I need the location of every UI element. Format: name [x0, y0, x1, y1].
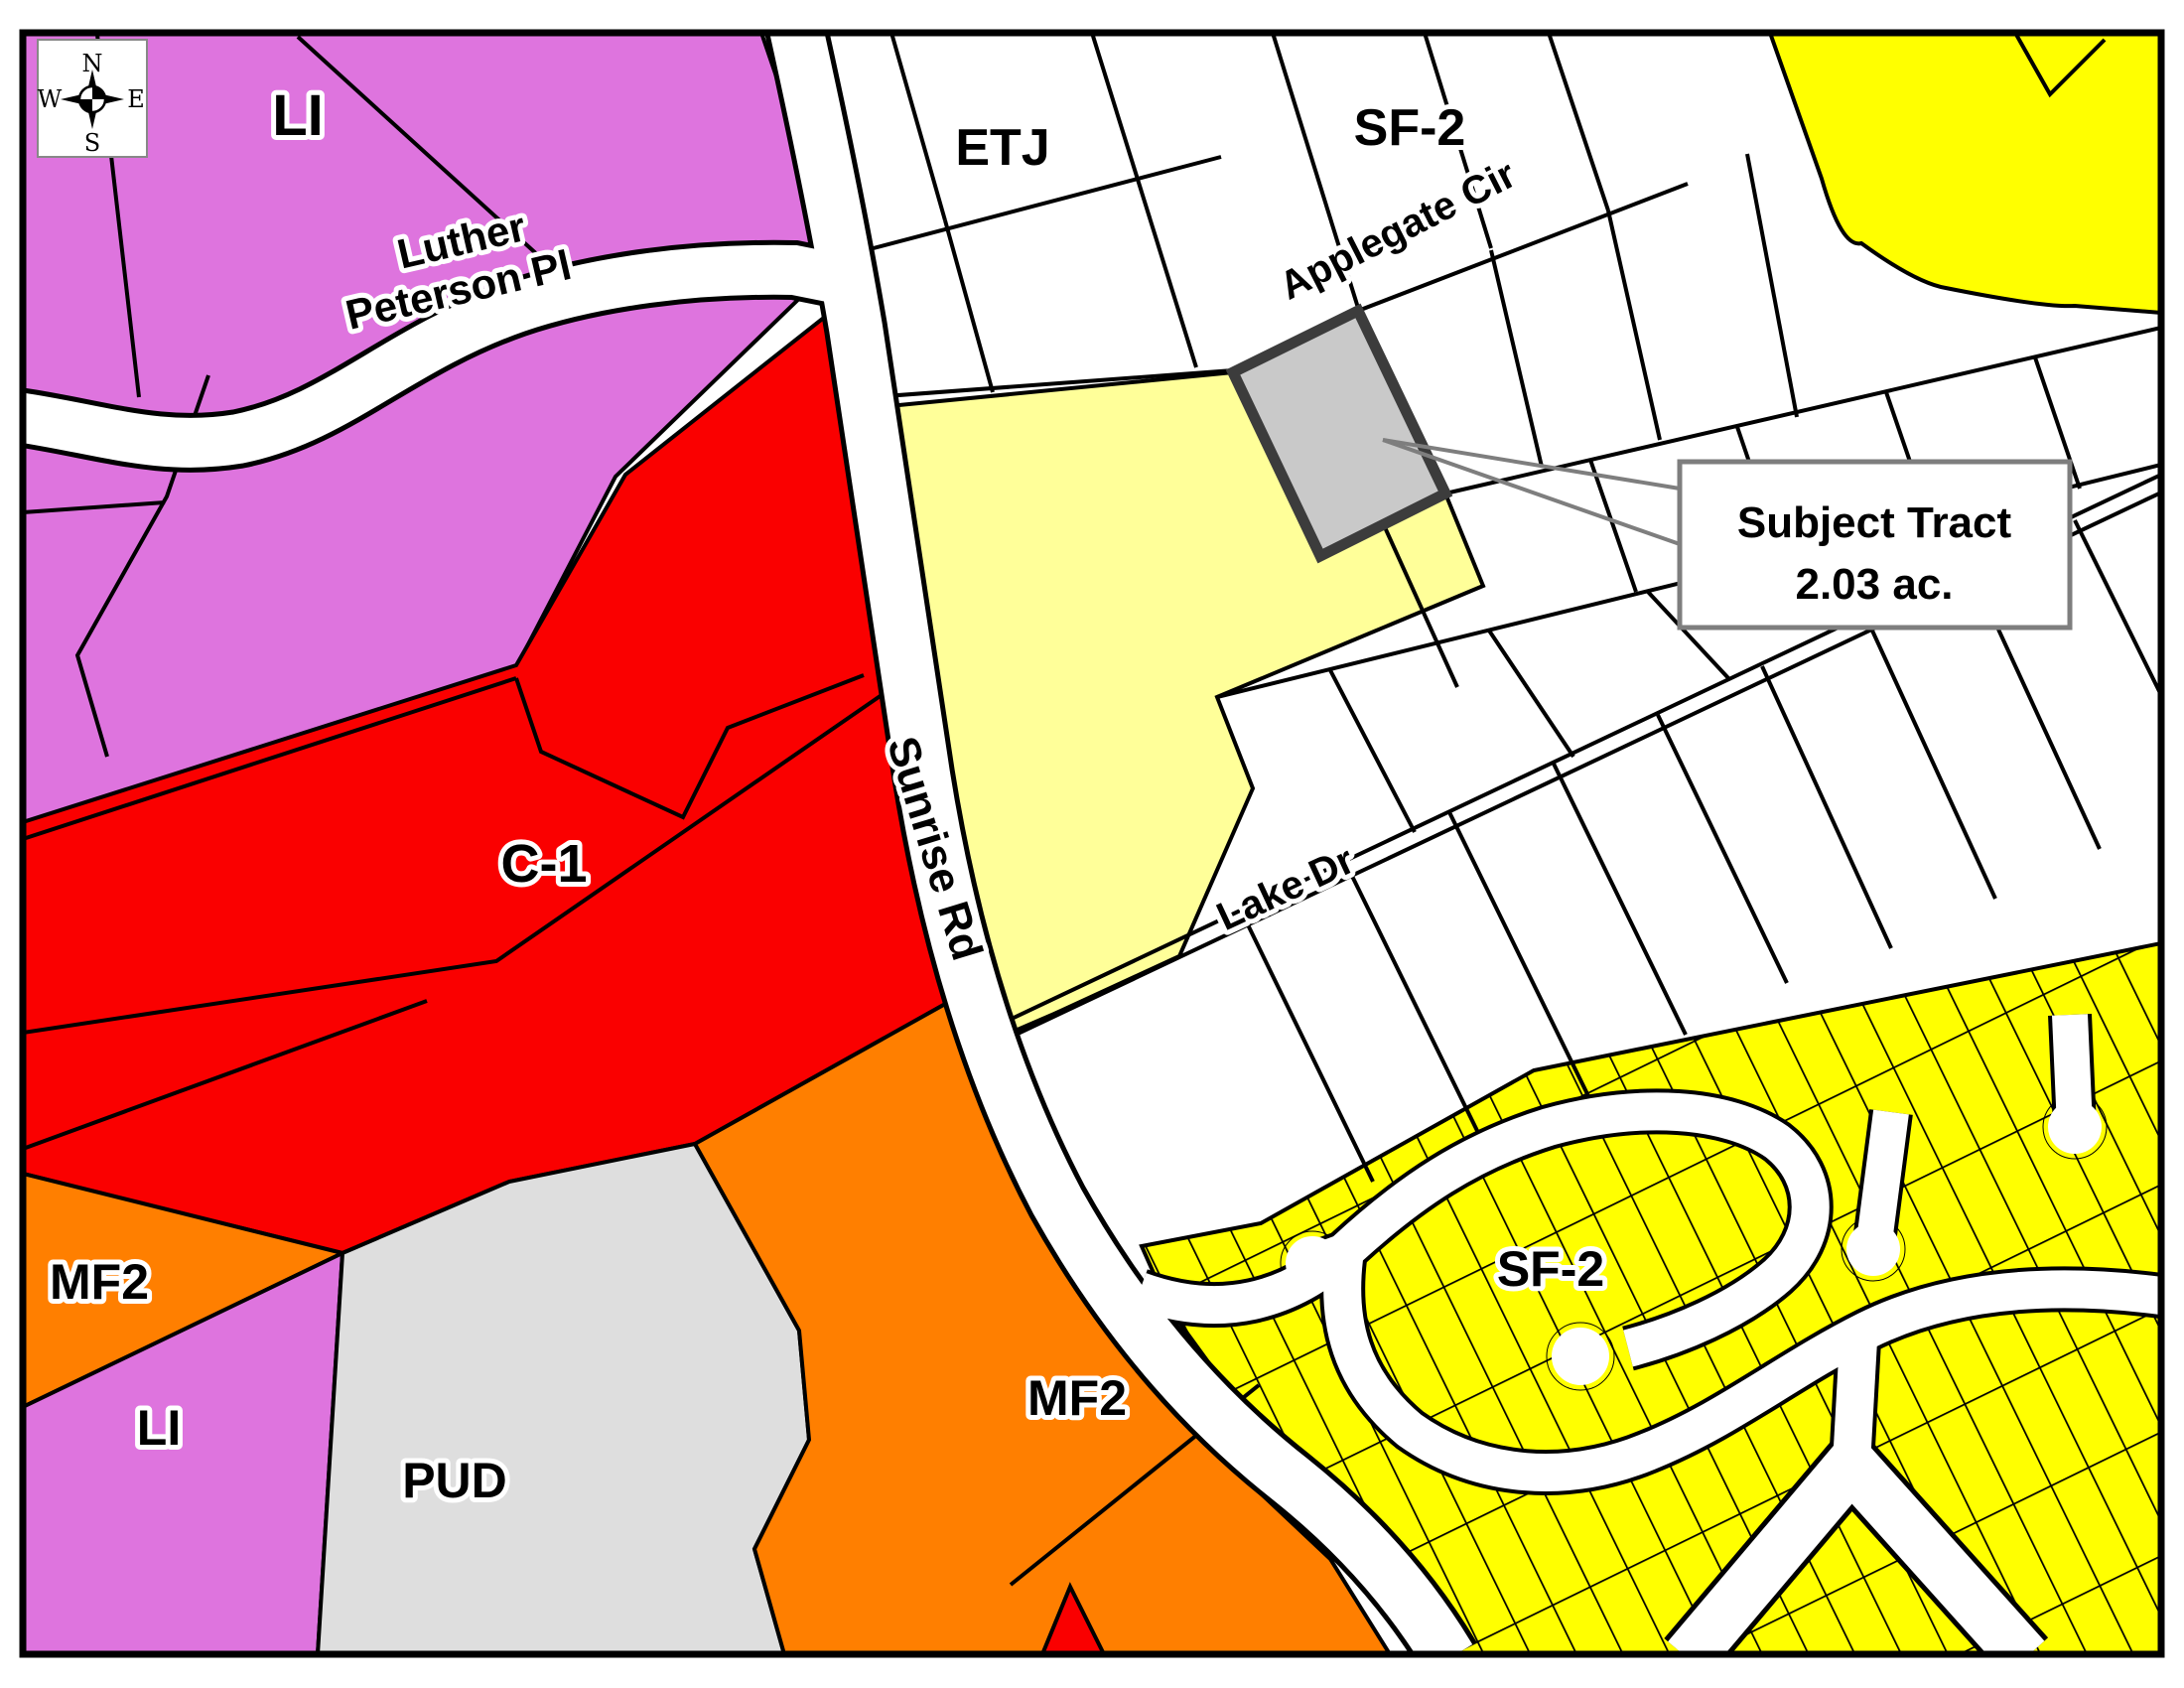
subject-tract-callout: Subject Tract 2.03 ac.	[1680, 462, 2070, 628]
zone-label-sf2-top: SF-2	[1354, 99, 1466, 157]
compass-south: S	[84, 129, 100, 157]
zoning-map-page: Luther Peterson Pl Sunrise Rd Applegate …	[0, 0, 2184, 1688]
compass-west: W	[38, 85, 63, 113]
callout-line2: 2.03 ac.	[1795, 560, 1953, 609]
culdesac-bulb	[1286, 1236, 1339, 1290]
zone-label-pud: PUD	[402, 1453, 507, 1508]
zone-label-mf2-main: MF2	[1027, 1370, 1127, 1426]
zone-label-mf2-left: MF2	[50, 1254, 149, 1310]
callout-line1: Subject Tract	[1737, 498, 2012, 547]
culdesac-bulb	[2048, 1100, 2102, 1154]
zone-label-etj: ETJ	[955, 119, 1049, 177]
zone-label-li-bottom: LI	[137, 1400, 181, 1456]
zone-label-sf2-main: SF-2	[1497, 1241, 1604, 1297]
compass-rose: N S E W	[38, 40, 147, 157]
compass-east: E	[127, 85, 145, 113]
zone-label-li-top: LI	[272, 83, 324, 148]
culdesac-bulb	[1846, 1222, 1900, 1276]
culdesac-bulb	[1552, 1328, 1609, 1385]
zone-label-c1: C-1	[500, 834, 587, 894]
zoning-map-canvas: Luther Peterson Pl Sunrise Rd Applegate …	[0, 0, 2184, 1688]
